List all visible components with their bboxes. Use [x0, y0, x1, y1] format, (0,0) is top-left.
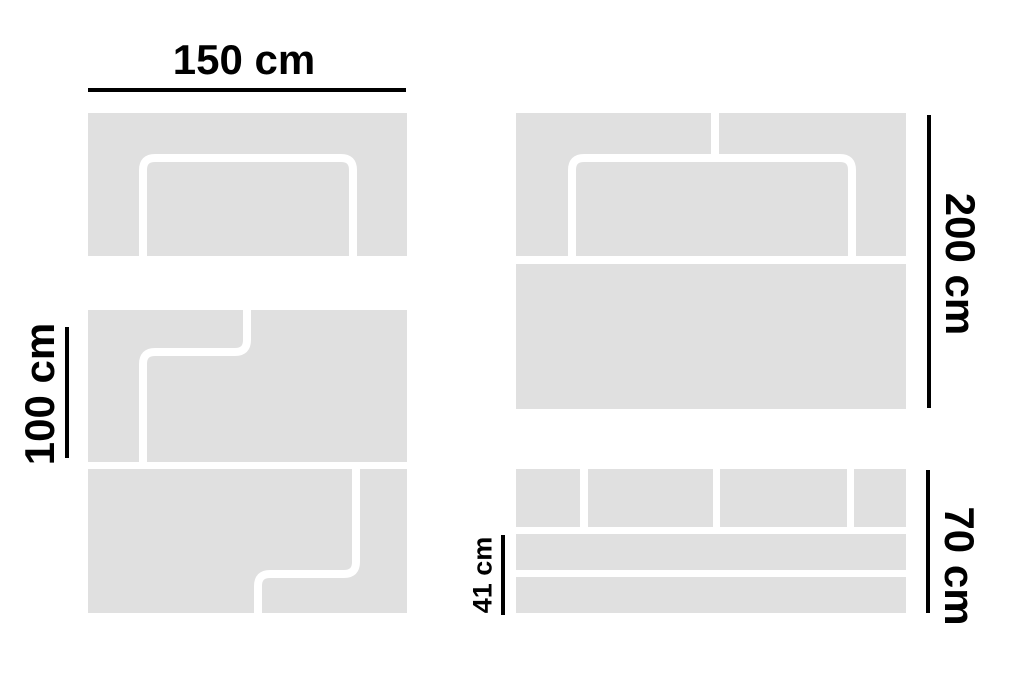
- panel-middle-right: [516, 264, 906, 409]
- dim-label-100cm: 100 cm: [19, 323, 61, 465]
- diagram-svg: [0, 0, 1024, 683]
- dim-label-200cm: 200 cm: [939, 193, 981, 335]
- panel-cutting-diagram: 150 cm 100 cm 200 cm 70 cm 41 cm: [0, 0, 1024, 683]
- strip-bar-1: [516, 534, 906, 570]
- dim-label-70cm: 70 cm: [938, 506, 980, 625]
- strip-piece-2: [588, 469, 713, 527]
- dim-label-41cm: 41 cm: [470, 537, 497, 614]
- strip-piece-4: [854, 469, 906, 527]
- panel-top-left: [88, 113, 407, 256]
- dim-label-150cm: 150 cm: [173, 39, 315, 81]
- strip-piece-3: [720, 469, 847, 527]
- strip-piece-1: [516, 469, 580, 527]
- strip-bar-2: [516, 577, 906, 613]
